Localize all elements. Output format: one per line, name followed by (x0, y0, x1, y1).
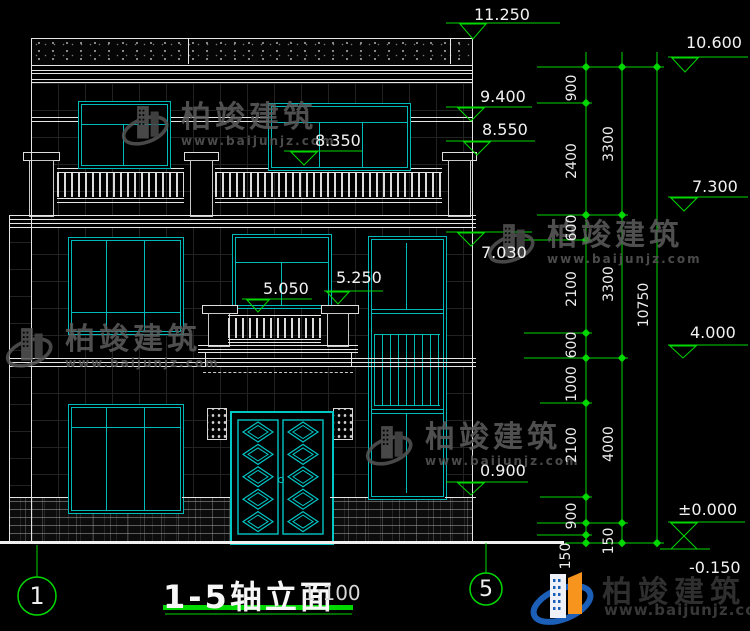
window-transom (235, 262, 329, 263)
slab-3f-line (9, 227, 476, 228)
axis-bubble-5: 5 (477, 577, 495, 602)
window-transom (71, 312, 181, 313)
elevation-label: 9.400 (480, 87, 526, 106)
elevation-label: 7.030 (481, 243, 527, 262)
balcony-rail (228, 315, 321, 316)
watermark-url: www.baijunjz.com (181, 134, 336, 148)
parapet-band (31, 38, 473, 66)
beam-dashed-line (203, 372, 353, 373)
balcony-slab-line (198, 352, 358, 353)
elevation-label: 7.300 (692, 177, 738, 196)
balcony-pier (327, 313, 349, 347)
watermark: 柏竣建筑 www.baijunjz.com (364, 418, 580, 472)
wall-left-bay (9, 215, 31, 541)
railing-pier (29, 160, 54, 217)
window-louver-band (374, 334, 440, 406)
company-logo-url: www.baijunjz.com (604, 601, 750, 619)
dim-value: 10750 (634, 275, 654, 335)
dim-value: 2100 (562, 259, 582, 319)
roof-line (31, 79, 473, 80)
balcony-support-line (351, 352, 352, 366)
elevation-label: 4.000 (690, 323, 736, 342)
entrance-door (230, 411, 334, 545)
window-transom (371, 309, 444, 310)
window-frame (71, 407, 181, 511)
base-top-line (9, 497, 68, 498)
railing-bottom-rail (57, 198, 184, 199)
base-top-line (182, 497, 230, 498)
roof-line (31, 70, 473, 71)
window-transom (371, 413, 444, 414)
axis-bubble-1: 1 (27, 582, 47, 610)
watermark-brand: 柏竣建筑 (425, 422, 580, 454)
railing-bottom-rail (215, 198, 442, 199)
window-mullion (362, 122, 363, 168)
watermark-brand: 柏竣建筑 (65, 324, 220, 356)
window-1f-left (68, 404, 184, 514)
dim-value: 4000 (599, 414, 619, 474)
door-pilaster-ornament (333, 408, 353, 440)
dim-value: 2100 (562, 415, 582, 475)
balcony-rail (228, 342, 321, 343)
balcony-rail (228, 339, 321, 340)
elevation-label: 5.250 (336, 268, 382, 287)
window-transom (371, 409, 444, 410)
window-mullion (144, 240, 145, 332)
dim-value: 2400 (562, 131, 582, 191)
parapet-joint (188, 39, 189, 64)
elevation-label: 10.600 (686, 33, 742, 52)
watermark: 柏竣建筑 www.baijunjz.com (120, 98, 336, 152)
railing-pier (190, 160, 213, 217)
building-edge-left-bay (9, 215, 10, 541)
ground-line (0, 541, 564, 544)
roof-line (31, 73, 473, 74)
watermark-logo-icon (120, 98, 174, 152)
balcony-slab-line (198, 345, 358, 346)
door-leaf-left (237, 419, 279, 535)
company-logo-icon (526, 566, 602, 626)
railing-balusters (215, 173, 442, 197)
window-mullion (144, 407, 145, 511)
window-frame (71, 240, 181, 332)
watermark-brand: 柏竣建筑 (181, 102, 336, 134)
watermark-url: www.baijunjz.com (65, 356, 220, 370)
elevation-label: 0.900 (480, 461, 526, 480)
watermark-logo-icon (364, 418, 418, 472)
window-mullion (106, 407, 107, 511)
dim-value: 600 (562, 198, 582, 258)
slab-3f-line (9, 219, 476, 220)
window-transom (71, 427, 181, 428)
slab-3f-line (9, 215, 476, 216)
door-knob (278, 477, 284, 483)
roof-line (31, 82, 473, 83)
base-top-line (330, 497, 368, 498)
elevation-label: 5.050 (263, 279, 309, 298)
window-transom (371, 313, 444, 314)
cad-elevation-drawing: 柏竣建筑 www.baijunjz.com 柏竣建筑 www.baijunjz.… (0, 0, 750, 631)
dim-value: 3300 (599, 254, 619, 314)
elevation-label: 11.250 (474, 5, 530, 24)
railing-pier (448, 160, 471, 217)
railing-rail (57, 202, 184, 203)
parapet-joint (450, 39, 451, 64)
drawing-scale: 1:100 (303, 581, 361, 605)
slab-3f-line (9, 223, 476, 224)
window-mullion (106, 240, 107, 332)
dim-value: 1000 (562, 354, 582, 414)
elevation-label: 8.550 (482, 120, 528, 139)
railing-rail (215, 202, 442, 203)
elevation-label: ±0.000 (678, 500, 737, 519)
balcony-slab-line (198, 349, 358, 350)
watermark: 柏竣建筑 www.baijunjz.com (4, 320, 220, 374)
dim-value: 900 (562, 58, 582, 118)
door-leaf-right (282, 419, 324, 535)
window-mullion (406, 243, 407, 309)
building-edge-left (31, 38, 32, 541)
elevation-label: 8.350 (315, 131, 361, 150)
dim-value: 150 (599, 511, 619, 571)
watermark-logo-icon (4, 320, 58, 374)
door-pilaster-ornament (207, 408, 227, 440)
balcony-balusters (228, 318, 321, 338)
railing-balusters (57, 173, 184, 197)
dim-value: 3300 (599, 114, 619, 174)
